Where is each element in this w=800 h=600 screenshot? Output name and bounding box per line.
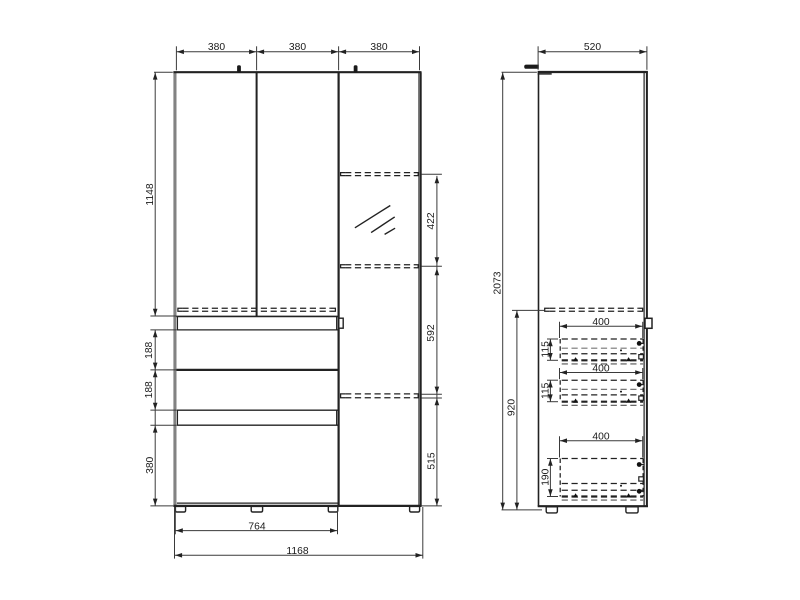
svg-text:520: 520: [584, 42, 601, 53]
svg-text:190: 190: [540, 468, 551, 485]
svg-text:422: 422: [426, 212, 437, 229]
svg-text:380: 380: [370, 42, 387, 53]
svg-text:2073: 2073: [492, 271, 503, 294]
svg-text:188: 188: [144, 341, 155, 358]
svg-text:380: 380: [289, 42, 306, 53]
svg-text:400: 400: [592, 317, 609, 328]
svg-text:1148: 1148: [145, 183, 156, 205]
svg-text:1168: 1168: [286, 546, 308, 557]
svg-text:115: 115: [540, 382, 551, 399]
svg-text:515: 515: [427, 452, 438, 469]
svg-text:115: 115: [540, 341, 551, 358]
svg-text:764: 764: [248, 521, 265, 532]
svg-text:380: 380: [145, 456, 156, 473]
svg-text:592: 592: [426, 324, 437, 341]
svg-text:380: 380: [208, 42, 225, 53]
svg-text:920: 920: [506, 399, 517, 416]
svg-text:188: 188: [144, 381, 155, 398]
svg-text:400: 400: [592, 432, 609, 443]
svg-text:400: 400: [592, 363, 609, 374]
